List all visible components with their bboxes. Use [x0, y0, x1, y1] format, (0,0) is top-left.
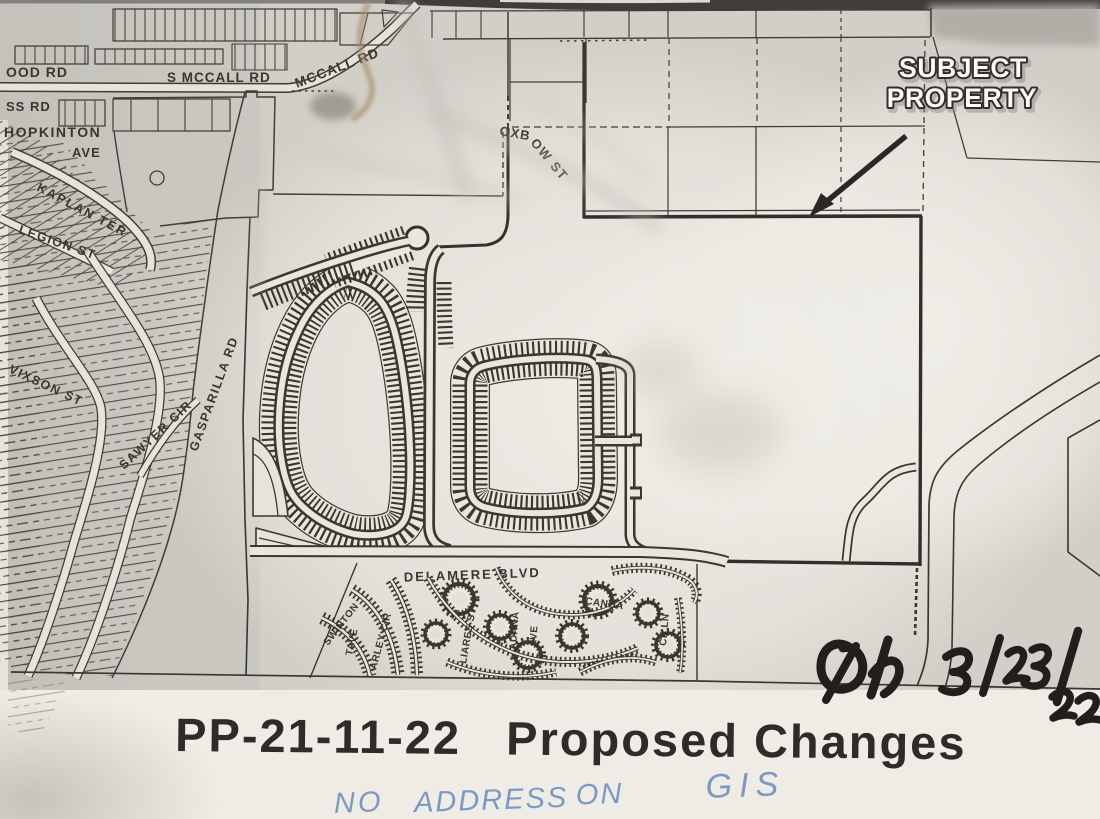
- svg-text:NO: NO: [333, 786, 384, 819]
- svg-text:GIS: GIS: [705, 765, 786, 806]
- svg-text:SUBJECT: SUBJECT: [899, 53, 1027, 83]
- svg-text:PP-21-11-22 Proposed Changes: PP-21-11-22 Proposed Changes: [175, 708, 967, 769]
- svg-text:AVE: AVE: [72, 145, 101, 160]
- svg-text:ADDRESS: ADDRESS: [411, 782, 568, 819]
- svg-text:OOD RD: OOD RD: [6, 64, 68, 80]
- svg-text:ON: ON: [575, 778, 624, 812]
- svg-text:HOPKINTON: HOPKINTON: [4, 124, 101, 140]
- svg-text:PROPERTY: PROPERTY: [887, 83, 1038, 113]
- svg-text:SS RD: SS RD: [6, 99, 51, 114]
- svg-text:AVE: AVE: [528, 625, 540, 647]
- svg-text:S MCCALL RD: S MCCALL RD: [167, 70, 271, 85]
